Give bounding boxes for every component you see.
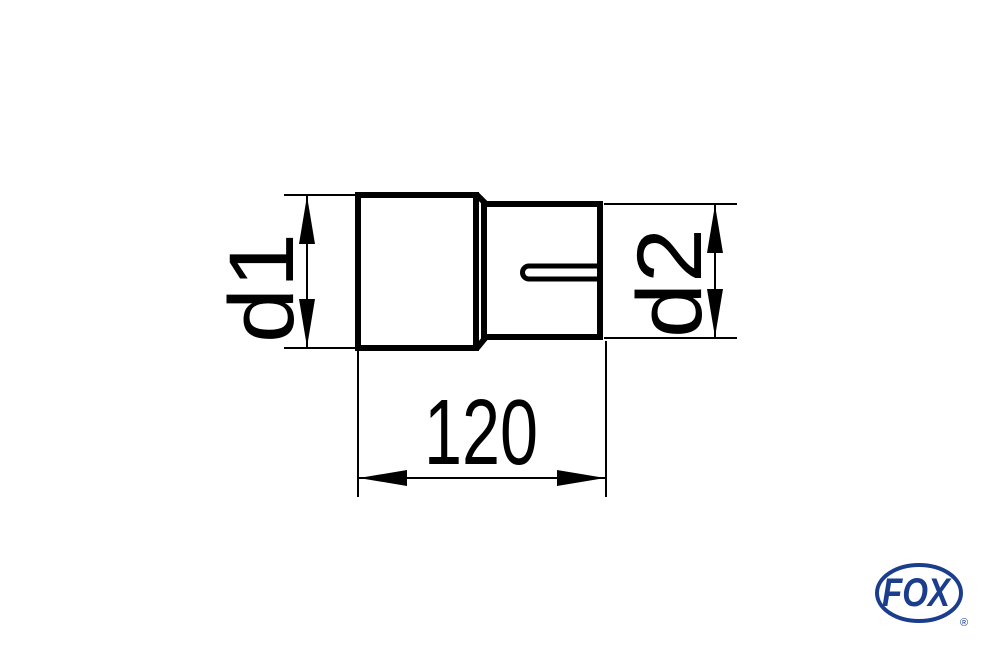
drawing-root: d1 d2 120 [211,195,737,497]
length-dimension: 120 [358,341,606,497]
pipe-body [358,195,600,348]
drawing-page: d1 d2 120 FOX [0,0,1000,645]
length-arrowhead-right [557,470,605,486]
length-label: 120 [424,380,538,484]
d2-dimension: d2 [604,204,737,338]
d1-label: d1 [211,233,313,343]
large-pipe-section-outline [358,195,476,348]
length-arrowhead-left [359,470,407,486]
fox-logo-text: FOX [882,571,952,615]
d2-label: d2 [619,228,721,338]
small-pipe-section-outline [484,204,600,337]
registered-trademark-icon: ® [960,617,968,629]
d1-dimension: d1 [211,195,357,348]
fox-logo: FOX ® [877,565,968,629]
pipe-adapter-technical-drawing: d1 d2 120 FOX [0,0,1000,645]
